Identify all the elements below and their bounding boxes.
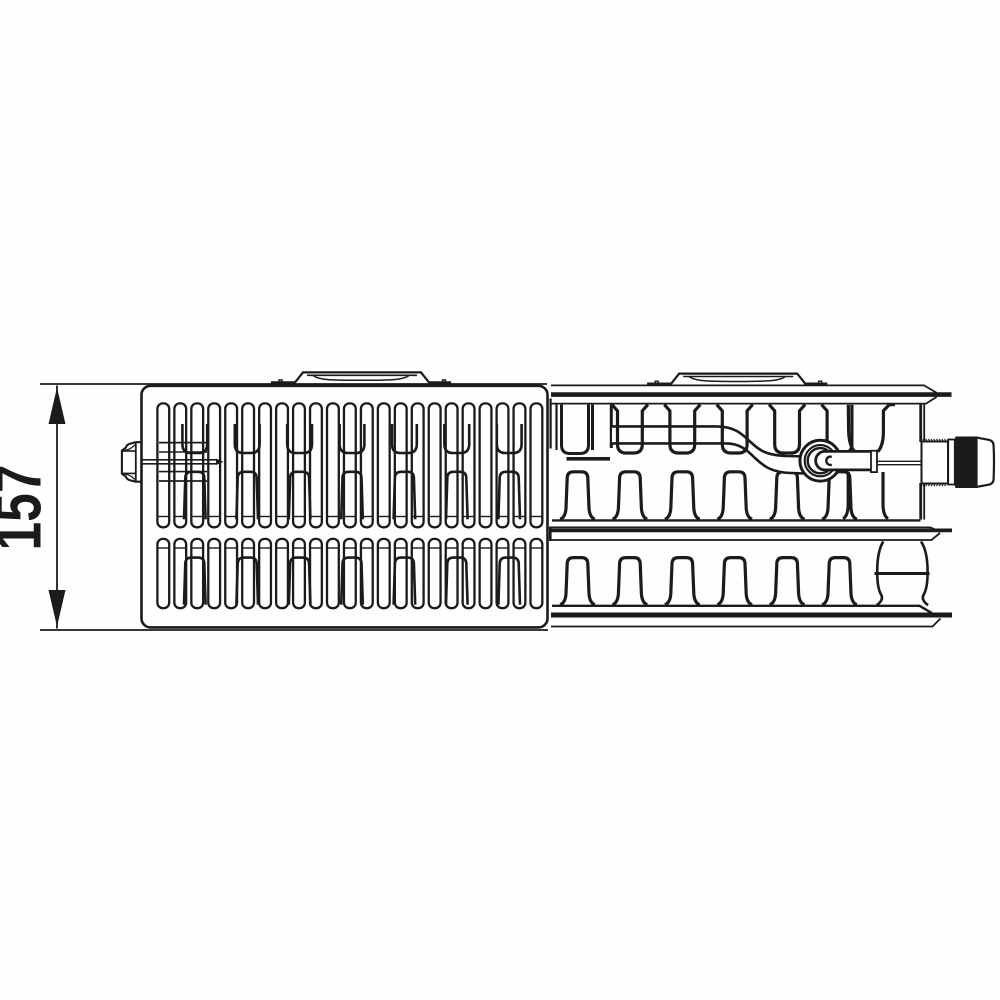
svg-text:157: 157 xyxy=(0,465,55,551)
